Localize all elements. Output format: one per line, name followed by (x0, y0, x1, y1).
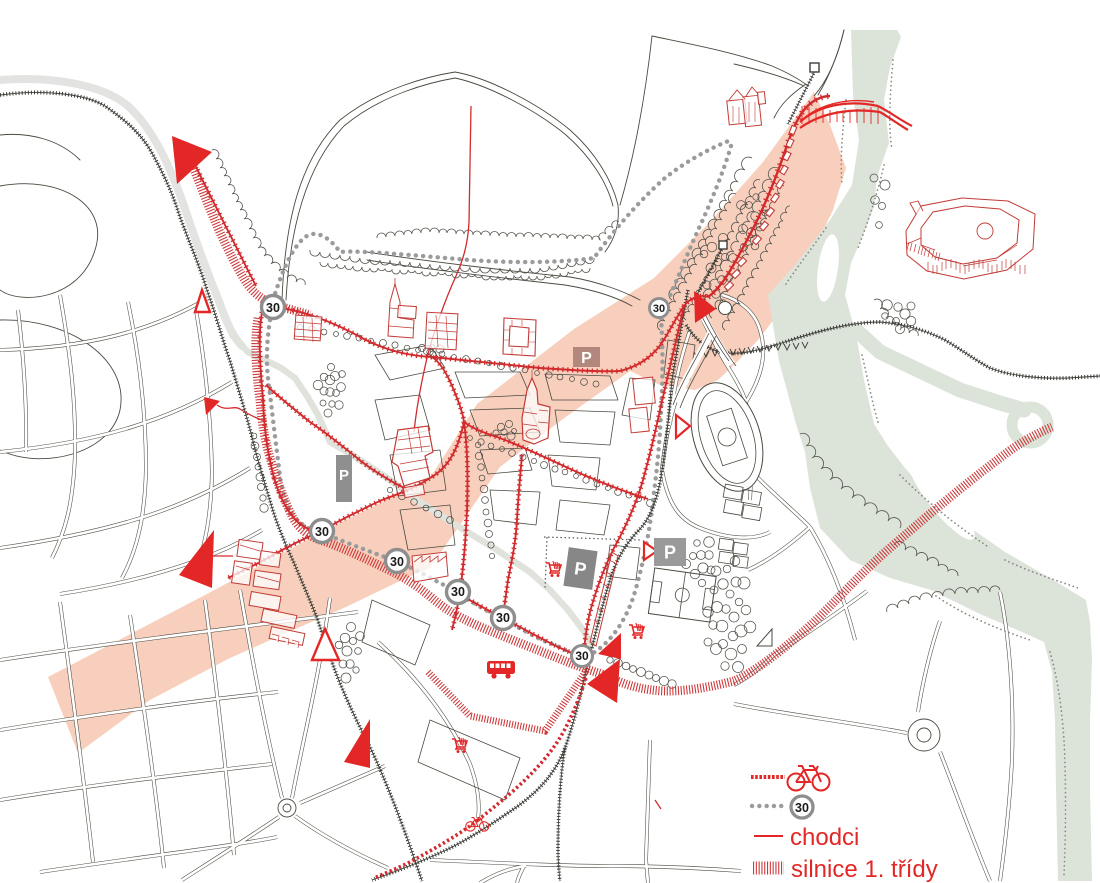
svg-text:30: 30 (315, 525, 329, 539)
svg-text:30: 30 (266, 301, 280, 315)
svg-text:P: P (339, 467, 349, 484)
svg-text:30: 30 (451, 585, 465, 599)
svg-text:chodci: chodci (790, 824, 859, 851)
svg-text:silnice 1. třídy: silnice 1. třídy (791, 856, 938, 883)
svg-text:P: P (581, 350, 592, 367)
svg-text:P: P (664, 542, 676, 562)
svg-text:30: 30 (795, 801, 809, 815)
svg-text:30: 30 (390, 555, 404, 569)
svg-text:30: 30 (653, 303, 665, 315)
svg-text:30: 30 (496, 611, 510, 625)
svg-text:30: 30 (575, 649, 589, 663)
